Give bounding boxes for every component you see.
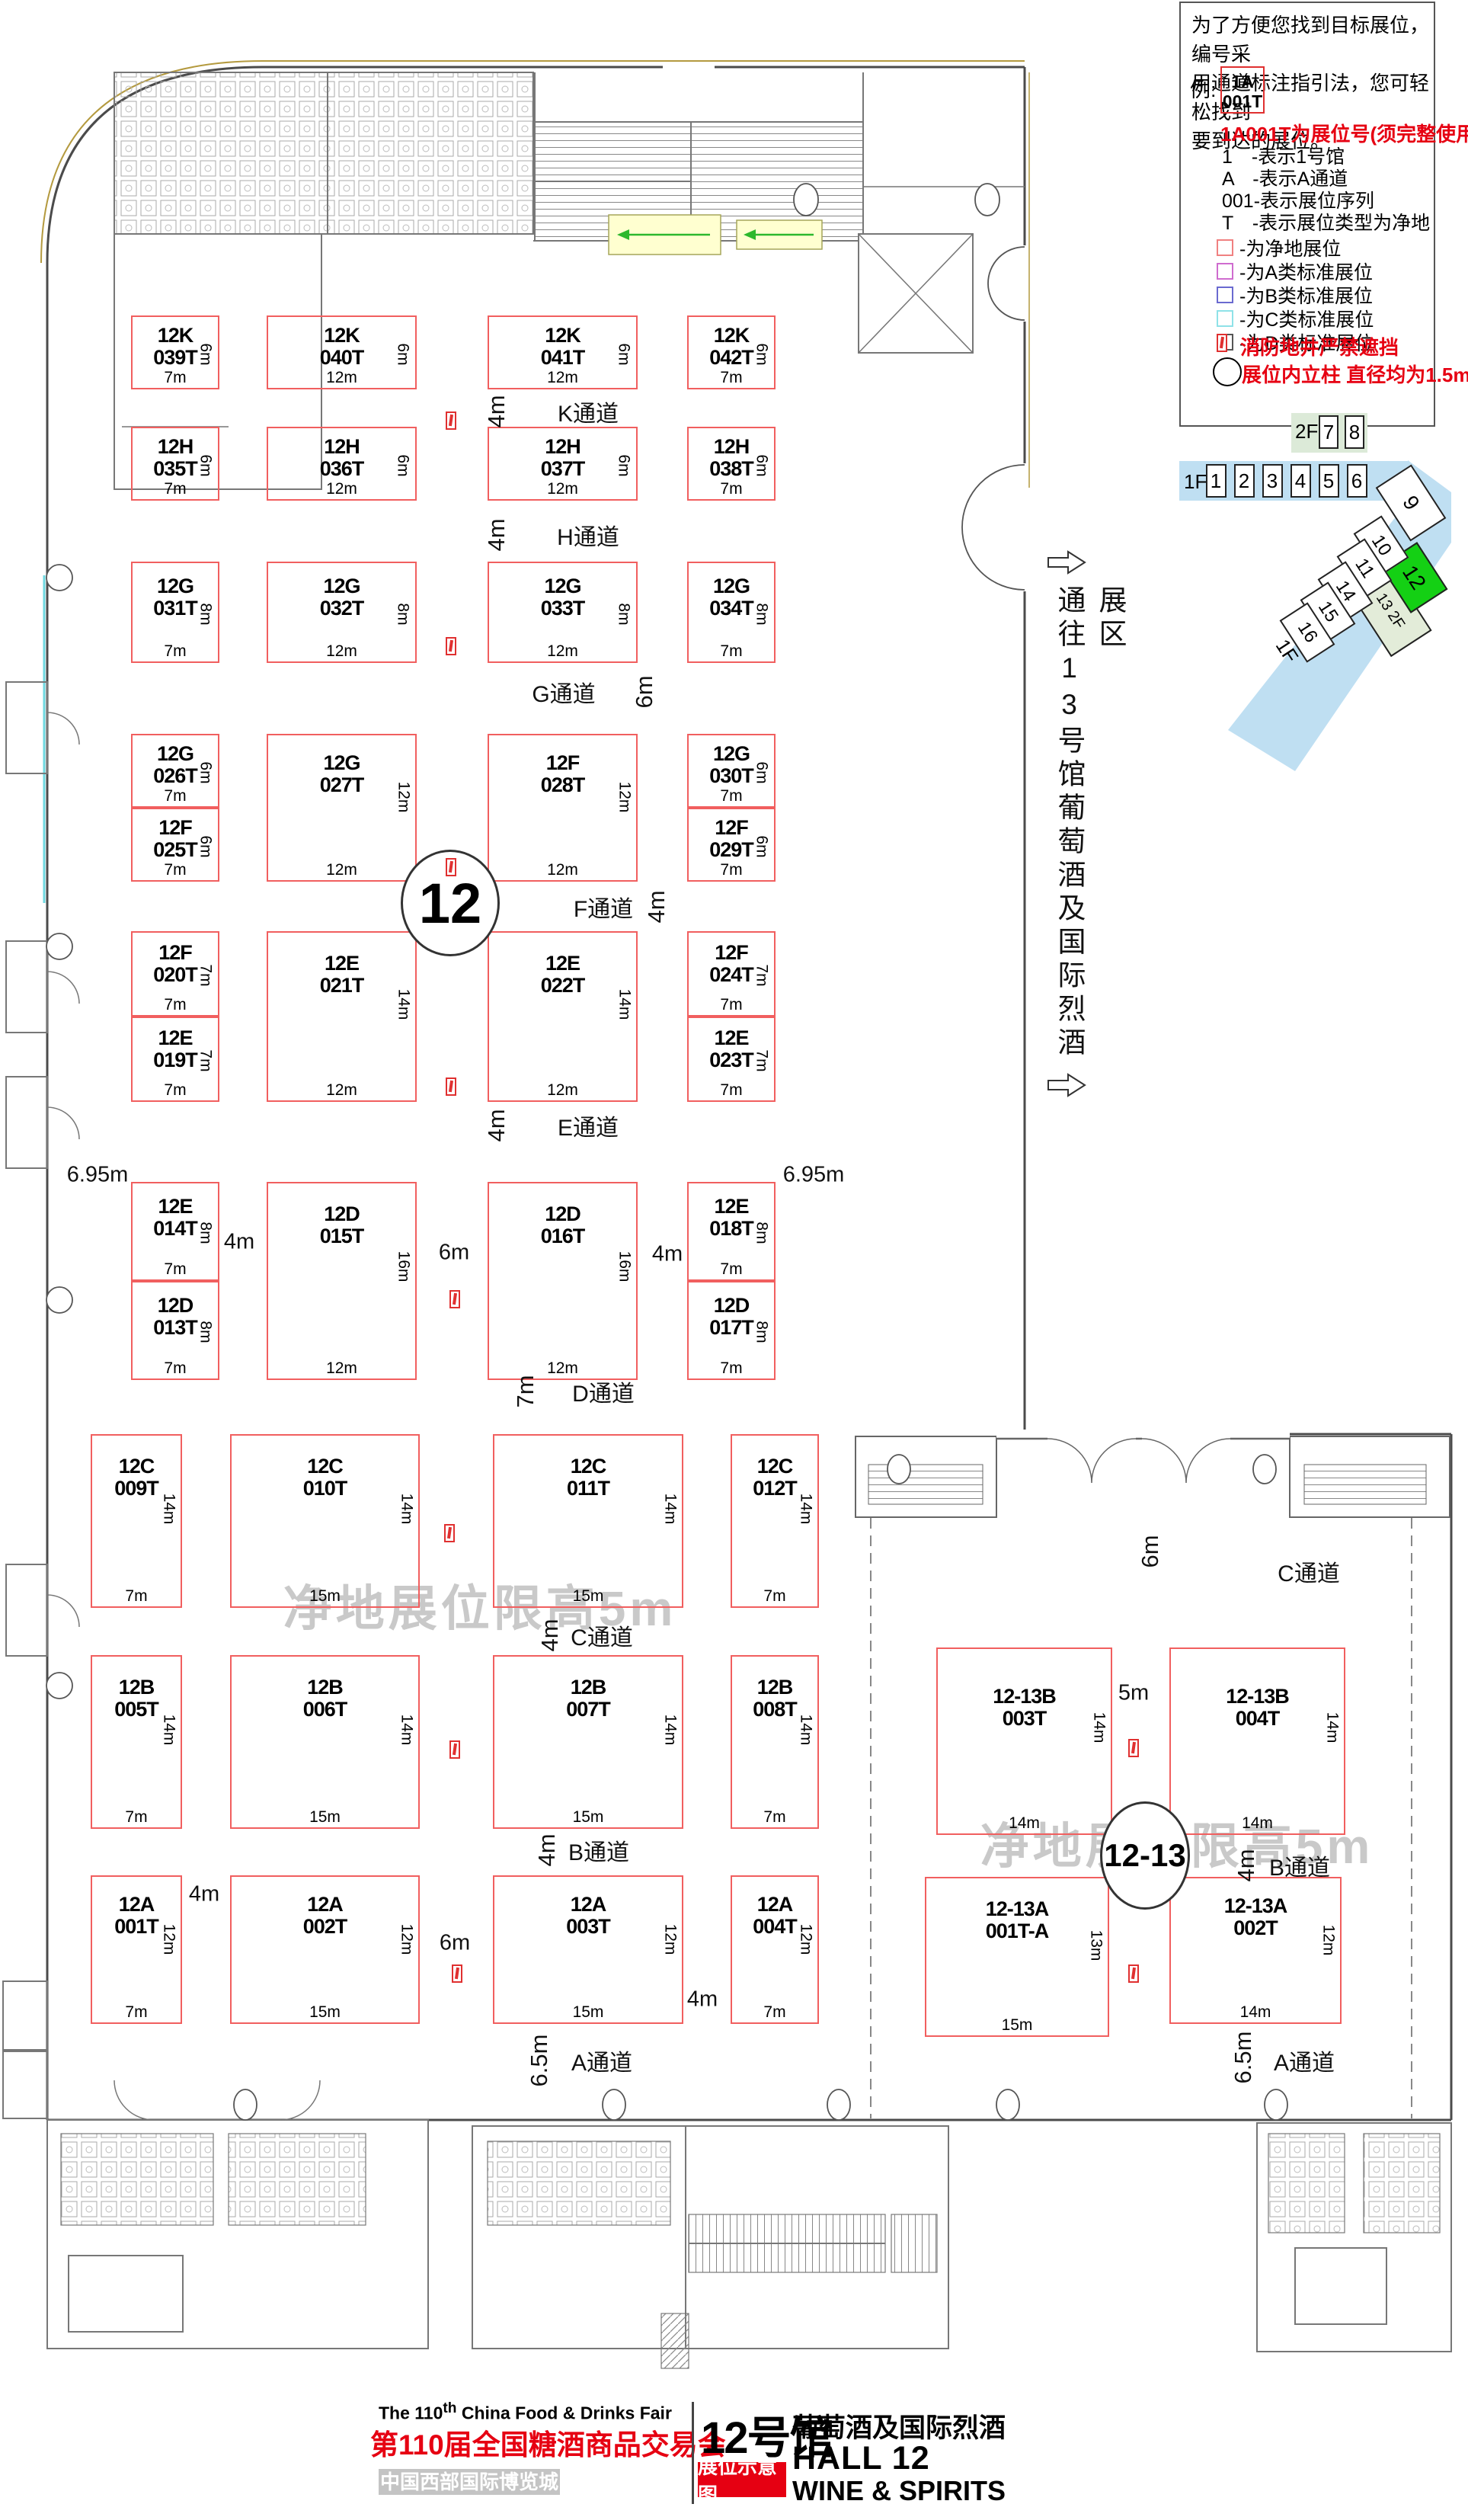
booth-id: 12B007T (494, 1676, 682, 1721)
booth-12D-015T: 12D015T12m16m (267, 1182, 417, 1380)
gap-dim: 4m (189, 1882, 219, 1907)
booth-height-dim: 12m (796, 1923, 814, 1955)
booth-id: 12-13B003T (938, 1686, 1111, 1730)
minimap-hall-8: 8 (1345, 415, 1364, 449)
aisle-name: H通道 (557, 518, 619, 552)
aisle-name: C通道 (571, 1619, 633, 1652)
booth-height-dim: 6m (615, 343, 633, 365)
booth-width-dim: 7m (133, 996, 218, 1014)
booth-width-dim: 7m (133, 787, 218, 805)
booth-width-dim: 15m (232, 1808, 418, 1827)
booth-height-dim: 14m (796, 1714, 814, 1745)
booth-width-dim: 12m (489, 861, 636, 879)
booth-12K-040T: 12K040T12m6m (267, 315, 417, 389)
booth-height-dim: 8m (394, 603, 412, 625)
fire-well-icon (449, 1290, 460, 1308)
booth-height-dim: 14m (159, 1714, 178, 1745)
booth-12C-010T: 12C010T15m14m (230, 1434, 420, 1608)
booth-height-dim: 6m (753, 761, 771, 783)
booth-width-dim: 12m (489, 369, 636, 387)
legend-example-booth: 1A 001T (1220, 66, 1265, 114)
booth-id: 12G027T (268, 752, 415, 796)
booth-width-dim: 7m (689, 1260, 774, 1279)
aisle-width-dim: 4m (643, 890, 670, 923)
fire-well-icon (1217, 334, 1227, 352)
booth-12E-014T: 12E014T7m8m (131, 1182, 219, 1281)
booth-12A-003T: 12A003T15m12m (493, 1875, 683, 2024)
gap-dim: 5m (1118, 1681, 1149, 1706)
booth-12K-039T: 12K039T7m6m (131, 315, 219, 389)
booth-height-dim: 7m (753, 964, 771, 986)
booth-width-dim: 7m (92, 2003, 181, 2022)
aisle-width-dim: 6.5m (526, 2035, 553, 2087)
booth-12C-012T: 12C012T7m14m (731, 1434, 819, 1608)
booth-height-dim: 6m (753, 835, 771, 857)
booth-id: 12-13A002T (1171, 1895, 1340, 1939)
booth-12B-005T: 12B005T7m14m (91, 1655, 182, 1829)
booth-height-dim: 12m (660, 1923, 679, 1955)
booth-id: 12-13B004T (1171, 1686, 1344, 1730)
legend-example-label: 例: (1190, 73, 1217, 103)
booth-height-dim: 6m (394, 454, 412, 476)
booth-width-dim: 7m (689, 642, 774, 661)
booth-id: 12E022T (489, 953, 636, 997)
booth-width-dim: 7m (133, 861, 218, 879)
booth-width-dim: 7m (92, 1587, 181, 1606)
booth-height-dim: 8m (197, 1321, 215, 1343)
gap-dim: 6.95m (783, 1163, 845, 1188)
booth-height-dim: 6m (197, 835, 215, 857)
booth-width-dim: 7m (133, 1359, 218, 1378)
booth-12D-016T: 12D016T12m16m (488, 1182, 638, 1380)
aisle-width-dim: 6m (631, 675, 658, 708)
gap-dim: 6.95m (67, 1163, 129, 1188)
booth-height-dim: 14m (394, 989, 412, 1020)
booth-width-dim: 7m (732, 2003, 817, 2022)
fire-well-icon (446, 637, 456, 655)
booth-12A-002T: 12A002T15m12m (230, 1875, 420, 2024)
booth-height-dim: 8m (197, 603, 215, 625)
booth-height-dim: 13m (1086, 1930, 1105, 1961)
booth-height-dim: 14m (1322, 1712, 1341, 1744)
booth-height-dim: 14m (660, 1714, 679, 1745)
booth-id: 12B006T (232, 1676, 418, 1721)
fire-well-icon (1128, 1739, 1139, 1757)
booth-width-dim: 7m (689, 996, 774, 1014)
booth-width-dim: 7m (689, 787, 774, 805)
booth-12B-006T: 12B006T15m14m (230, 1655, 420, 1829)
booth-width-dim: 14m (1171, 2003, 1340, 2022)
booth-height-dim: 14m (159, 1493, 178, 1524)
aisle-width-dim: 4m (533, 1833, 561, 1866)
booth-width-dim: 12m (268, 369, 415, 387)
booth-width-dim: 7m (689, 1359, 774, 1378)
aisle-name: B通道 (568, 1833, 629, 1867)
booth-height-dim: 7m (197, 964, 215, 986)
booth-12H-036T: 12H036T12m6m (267, 427, 417, 501)
booth-height-dim: 7m (753, 1049, 771, 1071)
floorplan-canvas: 净地展位限高5m 净地展位限高5m 12K039T7m6m12K040T12m6… (0, 0, 1468, 2520)
booth-12-13A-001T-A: 12-13A001T-A15m13m (925, 1877, 1109, 2037)
booth-id: 12A003T (494, 1894, 682, 1938)
booth-12E-018T: 12E018T7m8m (687, 1182, 776, 1281)
booth-12H-038T: 12H038T7m6m (687, 427, 776, 501)
booth-width-dim: 7m (732, 1808, 817, 1827)
legend-pillar-note: 展位内立柱 直径均为1.5m (1242, 360, 1468, 388)
booth-width-dim: 12m (268, 1359, 415, 1378)
booth-12B-007T: 12B007T15m14m (493, 1655, 683, 1829)
booth-width-dim: 7m (689, 1081, 774, 1100)
aisle-name: G通道 (532, 675, 595, 709)
booth-height-dim: 8m (753, 1222, 771, 1244)
booth-12G-027T: 12G027T12m12m (267, 734, 417, 882)
minimap-hall-2: 2 (1234, 464, 1255, 498)
booth-width-dim: 7m (689, 861, 774, 879)
booth-width-dim: 12m (489, 480, 636, 498)
booth-id: 12C011T (494, 1455, 682, 1500)
booth-12B-008T: 12B008T7m14m (731, 1655, 819, 1829)
booth-width-dim: 15m (494, 2003, 682, 2022)
booth-width-dim: 12m (489, 642, 636, 661)
booth-width-dim: 7m (133, 369, 218, 387)
booth-12G-030T: 12G030T7m6m (687, 734, 776, 808)
category-swatch (1217, 310, 1233, 327)
fire-well-icon (444, 1524, 455, 1542)
booth-height-dim: 12m (159, 1923, 178, 1955)
gap-dim: 4m (224, 1230, 254, 1255)
booth-width-dim: 15m (494, 1587, 682, 1606)
booth-height-dim: 16m (394, 1251, 412, 1282)
category-swatch (1217, 287, 1233, 303)
booth-height-dim: 14m (397, 1714, 415, 1745)
booth-width-dim: 7m (133, 1260, 218, 1279)
aisle-name: K通道 (558, 395, 619, 428)
booth-12G-026T: 12G026T7m6m (131, 734, 219, 808)
gap-dim: 4m (652, 1242, 683, 1267)
booth-12E-019T: 12E019T7m7m (131, 1017, 219, 1102)
booth-width-dim: 15m (926, 2016, 1108, 2035)
aisle-name: C通道 (1278, 1555, 1340, 1588)
minimap-hall-1: 1 (1206, 464, 1227, 498)
booth-width-dim: 7m (133, 1081, 218, 1100)
minimap-hall-6: 6 (1347, 464, 1367, 498)
to-hall13-note: 通往13号馆葡萄酒及国际烈酒展区 (1048, 585, 1131, 1088)
booth-height-dim: 8m (753, 1321, 771, 1343)
fire-well-icon (449, 1740, 460, 1759)
aisle-width-dim: 6m (1137, 1535, 1164, 1567)
right-arrow-icon (1047, 1073, 1086, 1097)
fire-well-icon (446, 1077, 456, 1096)
minimap-hall-7: 7 (1319, 415, 1338, 449)
aisle-width-dim: 4m (483, 518, 510, 551)
fire-well-icon (446, 858, 456, 876)
hall-overview-minimap: 2F781F12345613 2F12910111415161F (1173, 408, 1463, 773)
booth-id: 12D016T (489, 1203, 636, 1247)
hall-12-13-circle: 12-13 (1100, 1801, 1190, 1910)
legend-box: 为了方便您找到目标展位，编号采 用通道标注指引法，您可轻松找到 要到达的展位。 … (1179, 2, 1435, 427)
booth-12C-011T: 12C011T15m14m (493, 1434, 683, 1608)
booth-width-dim: 12m (268, 642, 415, 661)
category-swatch (1217, 263, 1233, 280)
aisle-name: A通道 (571, 2044, 632, 2077)
booth-height-dim: 12m (394, 782, 412, 813)
booth-height-dim: 12m (615, 782, 633, 813)
gap-dim: 6m (440, 1931, 470, 1956)
booth-12A-001T: 12A001T7m12m (91, 1875, 182, 2024)
gap-dim: 4m (687, 1987, 718, 2012)
booth-12F-020T: 12F020T7m7m (131, 931, 219, 1017)
right-arrow-icon (1047, 550, 1086, 575)
minimap-2f-label: 2F (1295, 420, 1318, 443)
booth-height-dim: 12m (397, 1923, 415, 1955)
booth-height-dim: 14m (796, 1493, 814, 1524)
fire-well-icon (1128, 1964, 1139, 1983)
aisle-width-dim: 4m (1233, 1849, 1260, 1881)
booth-width-dim: 7m (732, 1587, 817, 1606)
aisle-name: B通道 (1269, 1849, 1330, 1882)
booth-12F-029T: 12F029T7m6m (687, 808, 776, 882)
aisle-width-dim: 4m (483, 1109, 510, 1142)
booth-height-dim: 6m (615, 454, 633, 476)
booth-height-dim: 14m (1089, 1712, 1108, 1744)
booth-width-dim: 7m (689, 369, 774, 387)
booth-id: 12D015T (268, 1203, 415, 1247)
booth-12C-009T: 12C009T7m14m (91, 1434, 182, 1608)
aisle-name: F通道 (574, 890, 633, 924)
aisle-name: E通道 (558, 1109, 619, 1142)
booth-width-dim: 14m (938, 1814, 1111, 1833)
booth-width-dim: 12m (268, 1081, 415, 1100)
minimap-hall-4: 4 (1290, 464, 1311, 498)
booth-12-13B-004T: 12-13B004T14m14m (1169, 1647, 1345, 1835)
booth-height-dim: 8m (197, 1222, 215, 1244)
booth-12F-025T: 12F025T7m6m (131, 808, 219, 882)
booth-12F-028T: 12F028T12m12m (488, 734, 638, 882)
booth-height-dim: 7m (197, 1049, 215, 1071)
booth-12H-035T: 12H035T7m6m (131, 427, 219, 501)
booth-12-13A-002T: 12-13A002T14m12m (1169, 1877, 1342, 2024)
aisle-width-dim: 4m (483, 395, 510, 427)
booth-id: 12F028T (489, 752, 636, 796)
booth-id: 12C010T (232, 1455, 418, 1500)
booth-12G-032T: 12G032T12m8m (267, 562, 417, 663)
booth-width-dim: 12m (268, 480, 415, 498)
aisle-name: D通道 (572, 1375, 635, 1408)
category-swatch (1217, 239, 1233, 256)
booth-height-dim: 14m (660, 1493, 679, 1524)
booth-height-dim: 6m (394, 343, 412, 365)
pillar-icon (1213, 357, 1242, 386)
minimap-hall-5: 5 (1319, 464, 1339, 498)
booth-width-dim: 15m (494, 1808, 682, 1827)
booth-width-dim: 7m (133, 642, 218, 661)
booth-height-dim: 8m (753, 603, 771, 625)
booth-12E-023T: 12E023T7m7m (687, 1017, 776, 1102)
booth-12D-017T: 12D017T7m8m (687, 1281, 776, 1380)
booth-width-dim: 14m (1171, 1814, 1344, 1833)
booth-height-dim: 12m (1319, 1925, 1337, 1956)
booth-12E-022T: 12E022T12m14m (488, 931, 638, 1102)
aisle-name: A通道 (1274, 2044, 1335, 2077)
booth-height-dim: 6m (753, 454, 771, 476)
legend-fire-note: 消防地井严禁遮挡 (1240, 332, 1399, 360)
booth-12G-034T: 12G034T7m8m (687, 562, 776, 663)
booth-width-dim: 15m (232, 1587, 418, 1606)
booth-12E-021T: 12E021T12m14m (267, 931, 417, 1102)
booth-12A-004T: 12A004T7m12m (731, 1875, 819, 2024)
booth-height-dim: 6m (197, 343, 215, 365)
booth-width-dim: 7m (92, 1808, 181, 1827)
booth-height-dim: 6m (197, 761, 215, 783)
aisle-width-dim: 6.5m (1230, 2032, 1257, 2084)
legend-item: T -表示展位类型为净地 (1222, 208, 1430, 235)
booth-height-dim: 14m (397, 1493, 415, 1524)
booth-id: 12E021T (268, 953, 415, 997)
booth-12F-024T: 12F024T7m7m (687, 931, 776, 1017)
booth-width-dim: 12m (268, 861, 415, 879)
gap-dim: 6m (439, 1241, 469, 1266)
booth-id: 12A002T (232, 1894, 418, 1938)
aisle-width-dim: 7m (512, 1375, 539, 1407)
booth-height-dim: 8m (615, 603, 633, 625)
fire-well-icon (446, 411, 456, 430)
booth-12K-042T: 12K042T7m6m (687, 315, 776, 389)
booth-width-dim: 15m (232, 2003, 418, 2022)
booth-12G-031T: 12G031T7m8m (131, 562, 219, 663)
booth-width-dim: 12m (489, 1081, 636, 1100)
aisle-width-dim: 4m (536, 1619, 564, 1651)
booth-12D-013T: 12D013T7m8m (131, 1281, 219, 1380)
booth-12K-041T: 12K041T12m6m (488, 315, 638, 389)
booth-width-dim: 7m (689, 480, 774, 498)
booth-height-dim: 16m (615, 1251, 633, 1282)
booth-height-dim: 6m (197, 454, 215, 476)
booth-12-13B-003T: 12-13B003T14m14m (936, 1647, 1112, 1835)
booth-height-dim: 6m (753, 343, 771, 365)
booth-id: 12-13A001T-A (926, 1898, 1108, 1942)
booth-width-dim: 7m (133, 480, 218, 498)
minimap-hall-3: 3 (1262, 464, 1283, 498)
minimap-1f-label: 1F (1184, 470, 1207, 494)
booth-12H-037T: 12H037T12m6m (488, 427, 638, 501)
booth-12G-033T: 12G033T12m8m (488, 562, 638, 663)
booth-height-dim: 14m (615, 989, 633, 1020)
fire-well-icon (452, 1964, 462, 1983)
